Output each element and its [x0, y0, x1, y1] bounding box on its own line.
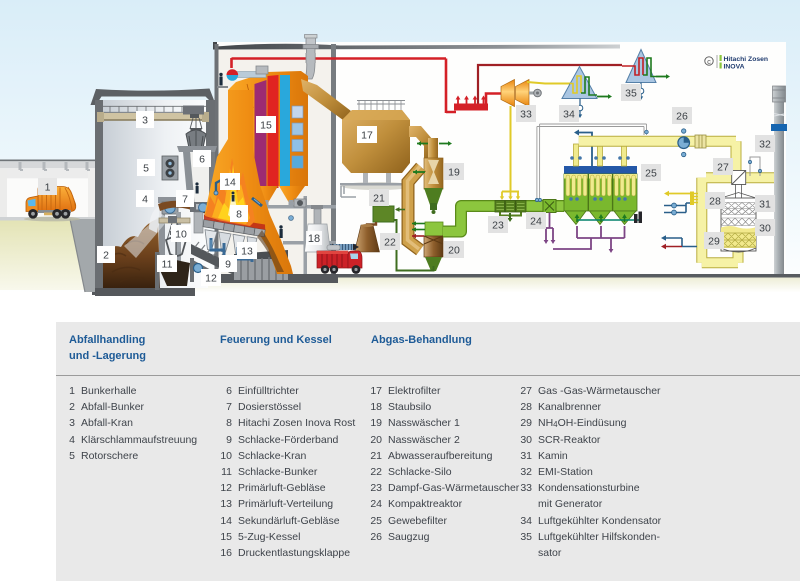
svg-text:26: 26 [676, 111, 688, 123]
svg-text:1: 1 [45, 182, 51, 194]
svg-text:12: 12 [205, 273, 217, 285]
svg-text:31: 31 [759, 199, 771, 211]
svg-text:24: 24 [530, 216, 542, 228]
svg-text:35: 35 [625, 88, 637, 100]
svg-text:Hitachi Zosen: Hitachi Zosen [724, 56, 769, 63]
svg-text:8: 8 [236, 209, 242, 221]
svg-text:23: 23 [492, 220, 504, 232]
svg-text:5: 5 [143, 163, 149, 175]
svg-text:25: 25 [645, 168, 657, 180]
svg-text:c: c [707, 57, 711, 66]
svg-text:6: 6 [199, 154, 205, 166]
svg-text:7: 7 [182, 194, 188, 206]
svg-text:18: 18 [308, 233, 320, 245]
svg-text:20: 20 [448, 245, 460, 257]
svg-text:22: 22 [384, 237, 396, 249]
svg-text:33: 33 [520, 109, 532, 121]
svg-text:10: 10 [175, 229, 187, 241]
svg-text:INOVA: INOVA [724, 64, 745, 71]
svg-text:3: 3 [142, 115, 148, 127]
svg-text:34: 34 [563, 109, 575, 121]
svg-text:9: 9 [225, 259, 231, 271]
svg-text:29: 29 [708, 236, 720, 248]
svg-text:32: 32 [759, 139, 771, 151]
svg-text:11: 11 [162, 259, 173, 271]
svg-text:17: 17 [361, 130, 373, 142]
svg-text:19: 19 [448, 167, 460, 179]
svg-text:14: 14 [224, 177, 236, 189]
svg-text:15: 15 [260, 120, 272, 132]
svg-text:28: 28 [709, 196, 721, 208]
svg-text:2: 2 [103, 250, 109, 262]
svg-text:4: 4 [142, 194, 148, 206]
svg-text:27: 27 [717, 162, 729, 174]
svg-text:21: 21 [373, 193, 385, 205]
svg-text:13: 13 [241, 246, 253, 258]
svg-text:30: 30 [759, 223, 771, 235]
